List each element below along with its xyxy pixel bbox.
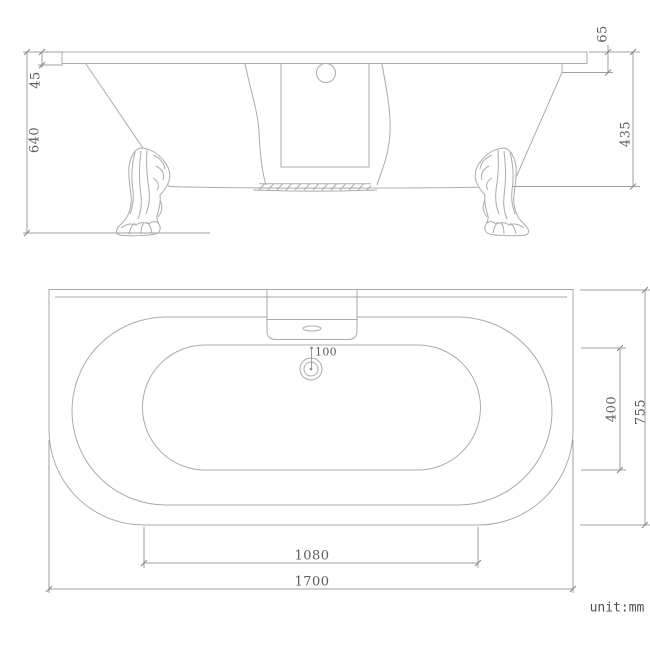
plan-view xyxy=(49,290,573,526)
tub-bottom-edge xyxy=(169,187,512,189)
dim-label-shoulder-to-base: 435 xyxy=(620,121,633,147)
dim-label-overall-height: 640 xyxy=(29,127,42,153)
apron-panel xyxy=(281,64,369,168)
tub-right-wall xyxy=(512,64,562,187)
rim-slab xyxy=(62,52,587,64)
dim-label-rim-thickness: 45 xyxy=(30,71,43,89)
dim-label-rim-to-shoulder: 65 xyxy=(597,25,610,43)
dim-label-overall-width: 755 xyxy=(635,399,648,425)
overflow-slot-icon xyxy=(303,326,321,331)
inner-bowl-left-curve xyxy=(245,64,266,185)
overflow-hole-icon xyxy=(317,64,336,83)
side-elevation-view xyxy=(62,52,587,236)
base-hatch-band xyxy=(253,184,377,191)
extension-lines xyxy=(23,52,650,593)
right-claw-foot-icon xyxy=(475,148,528,236)
dim-label-drain-offset: 100 xyxy=(315,347,337,358)
inner-bowl-right-curve xyxy=(377,64,390,185)
dim-label-floor-length: 1080 xyxy=(294,550,329,563)
dimension-ticks xyxy=(24,49,648,592)
unit-label: unit:mm xyxy=(590,601,645,616)
technical-drawing-canvas: 640 45 65 435 100 400 755 1080 1700 unit… xyxy=(0,0,650,650)
dim-label-inner-width: 400 xyxy=(606,396,619,422)
left-claw-foot-icon xyxy=(116,148,169,236)
dim-label-overall-length: 1700 xyxy=(294,576,329,589)
